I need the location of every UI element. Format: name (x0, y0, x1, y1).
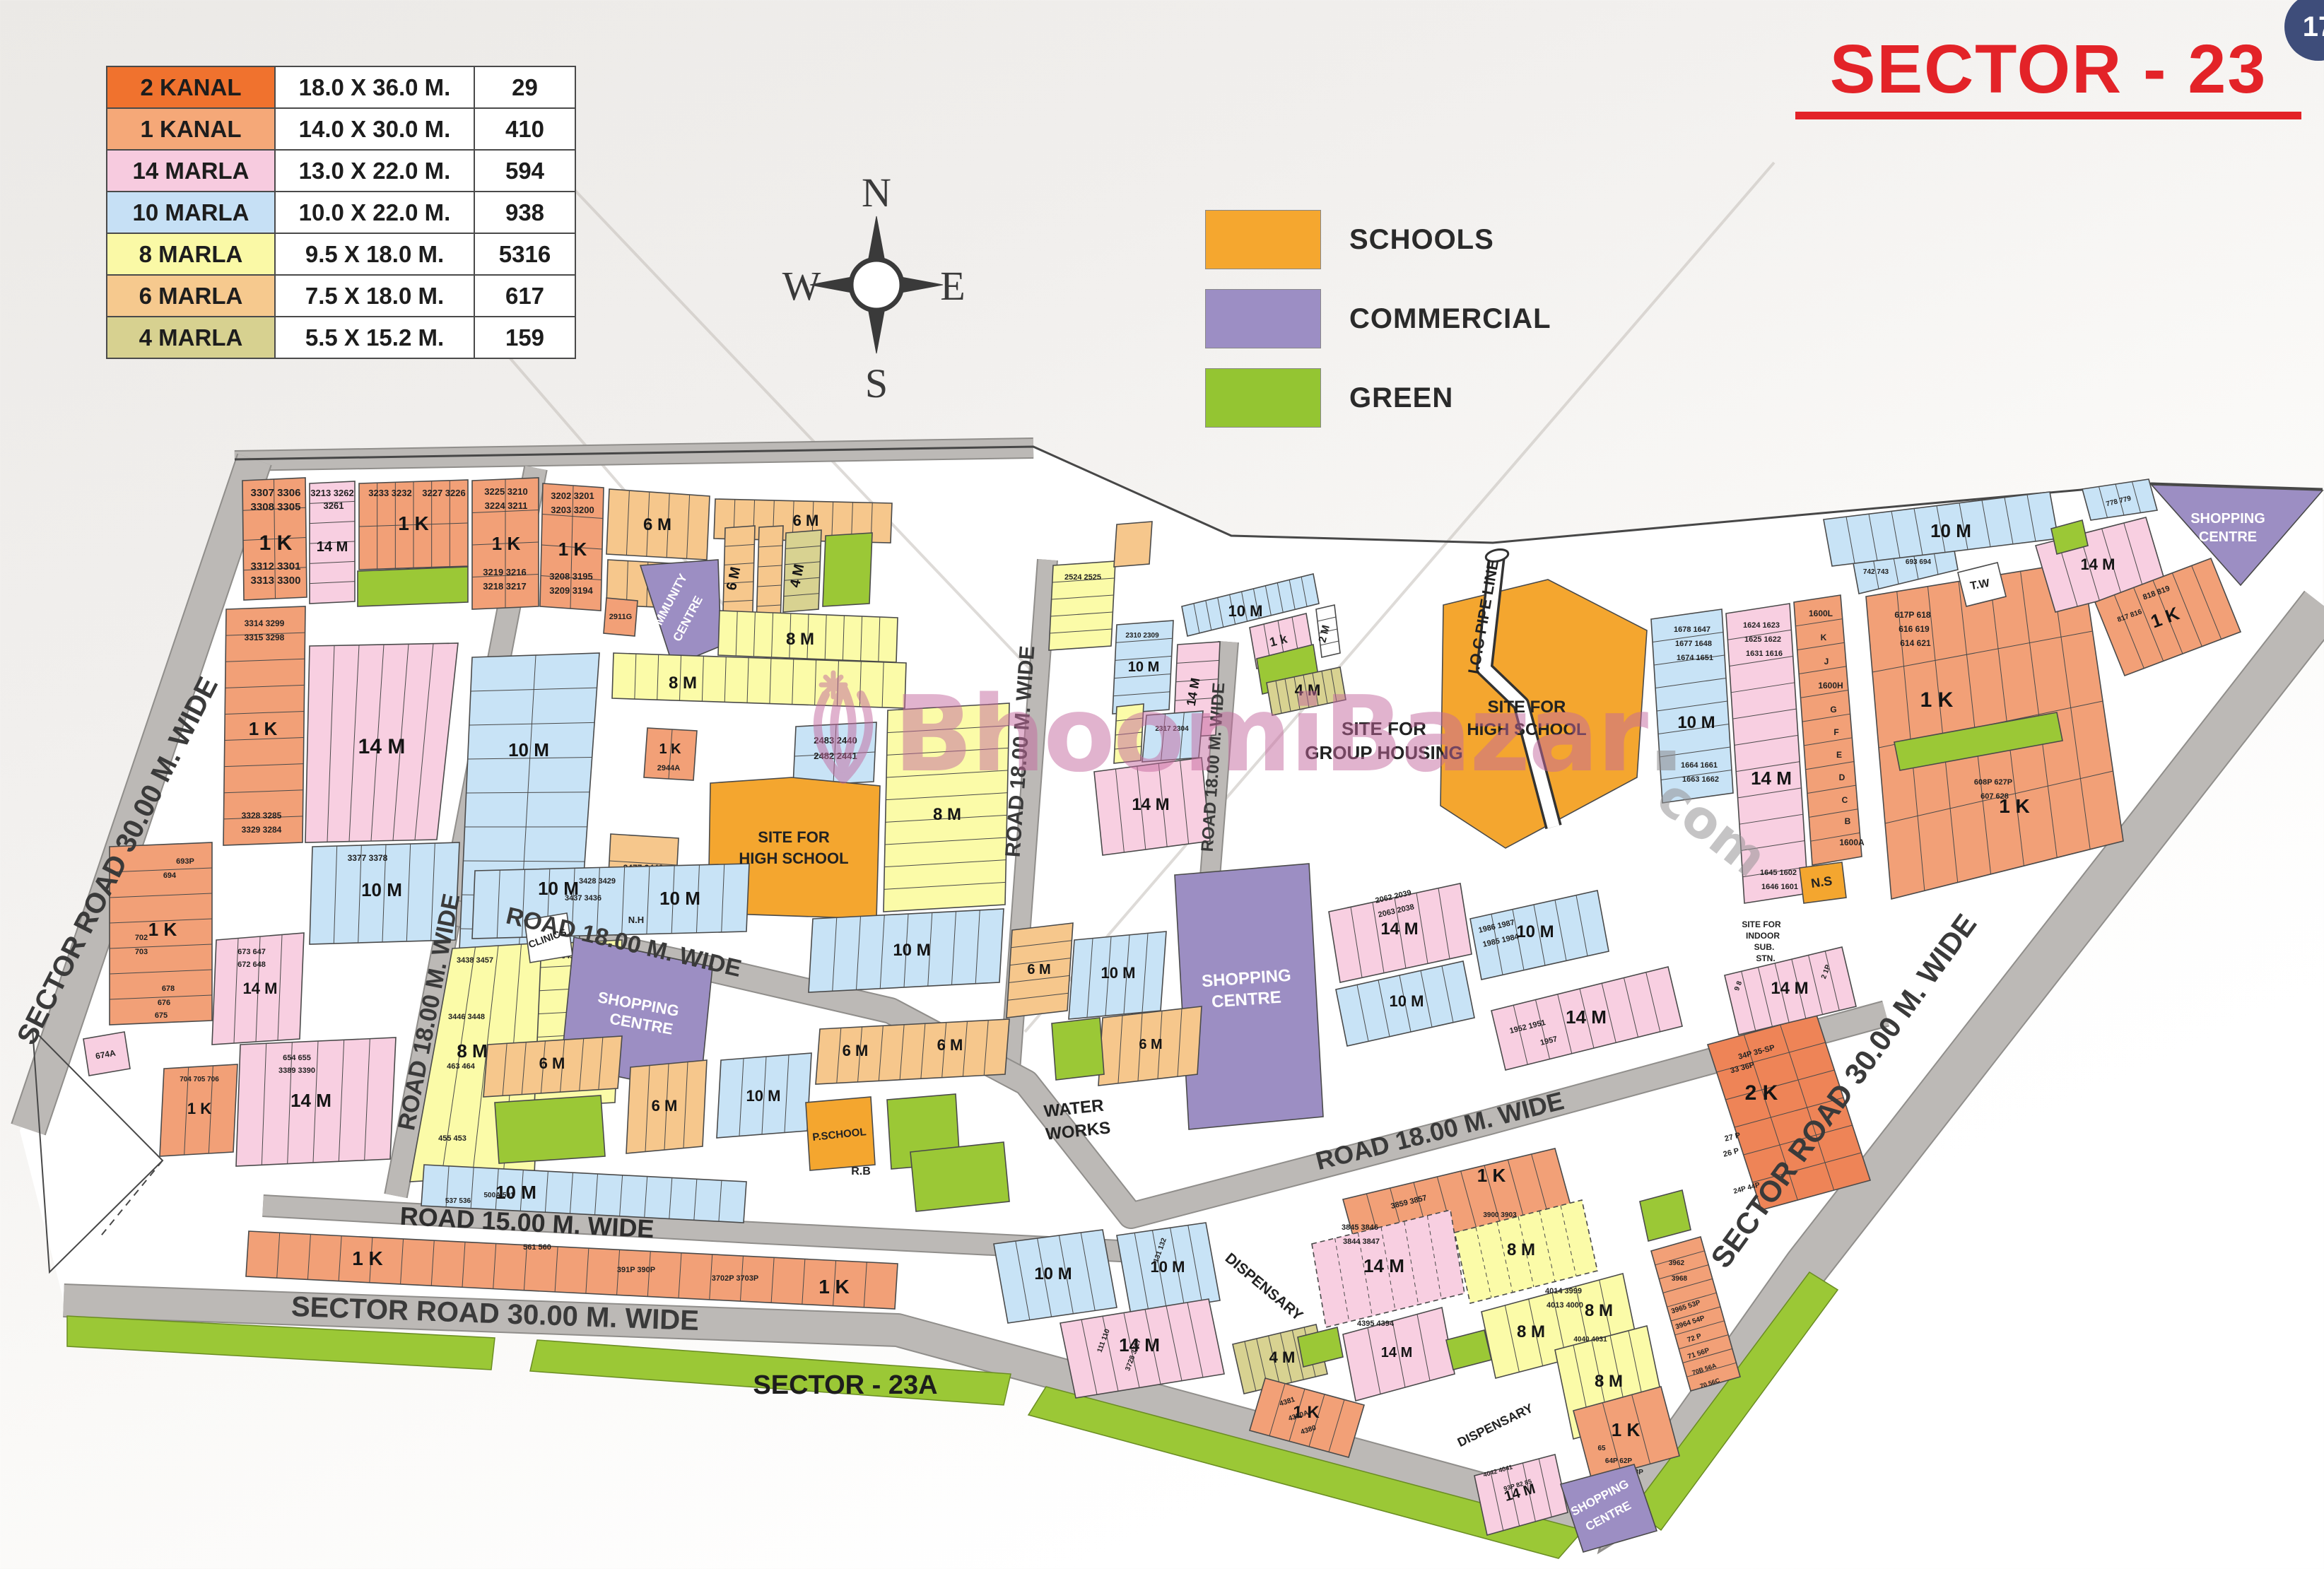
color-swatch (1205, 289, 1321, 348)
plot-size-label: 8 M (1507, 1240, 1535, 1259)
plot-size-label: 1 K (249, 718, 278, 739)
map-text-label: SUB. (1754, 942, 1775, 952)
plot-count: 159 (475, 317, 575, 358)
plot-number: F (1833, 727, 1838, 737)
plot-size-label: 10 M (1128, 659, 1159, 675)
plot-number: 675 (155, 1011, 168, 1020)
color-swatch (1205, 210, 1321, 269)
plot-number: 2310 2309 (1125, 632, 1159, 640)
plot-size-label: 1 K (558, 539, 587, 560)
plot-number: 703 (135, 948, 148, 956)
plot-number: 3219 3216 (483, 567, 526, 577)
plot-size-label: 8 M (1585, 1301, 1613, 1320)
color-swatch (1205, 368, 1321, 428)
plot-size-label: 4 M (1295, 681, 1321, 699)
plot-type-label: 8 MARLA (107, 234, 276, 274)
plot-number: 693P (176, 857, 194, 866)
plot-count: 938 (475, 192, 575, 233)
plot-dimensions: 5.5 X 15.2 M. (276, 317, 475, 358)
color-legend-label: SCHOOLS (1349, 224, 1494, 256)
plot-size-label: 10 M (1516, 922, 1554, 941)
color-legend-item: COMMERCIAL (1205, 290, 1551, 348)
plot-size-label: 1 K (398, 512, 429, 534)
plot-number: C (1842, 795, 1848, 805)
plot-number: D (1839, 772, 1845, 782)
plot-number: 1674 1651 (1677, 654, 1713, 662)
plot-number: 500A 501 (484, 1192, 515, 1199)
plot-size-label: 8 M (786, 630, 814, 649)
plot-size-label: 10 M (1677, 713, 1715, 732)
plot-number: 1645 1602 (1760, 869, 1797, 877)
plot-number: 607 628 (1980, 792, 2009, 801)
plot-size-label: 8 M (669, 674, 697, 693)
plot-type-label: 2 KANAL (107, 67, 276, 107)
plot-size-label: 6 M (539, 1054, 565, 1072)
compass-rose-icon: N S W E (770, 170, 982, 403)
plot-number: 3233 3232 (368, 488, 411, 498)
plot-number: 614 621 (1900, 638, 1931, 648)
plot-size-label: 14 M (317, 539, 348, 555)
plot-number: 3377 3378 (348, 853, 388, 863)
plot-size-label: 1 K (659, 741, 681, 757)
plot-size-label: 14 M (1381, 1345, 1412, 1361)
road (235, 448, 1033, 461)
map-text-label: SHOPPING (2190, 511, 2265, 527)
map-text-label: SITE FOR (758, 828, 830, 846)
plot-size-label: 10 M (893, 941, 930, 960)
plot-number: 64P 62P (1605, 1457, 1633, 1465)
plot-dimensions: 18.0 X 36.0 M. (276, 67, 475, 107)
sector-map-page: { "header": { "title": "SECTOR - 23", "b… (0, 0, 2324, 1569)
plot-size-label: 14 M (358, 735, 406, 758)
plot-size-label: 1 K (1612, 1419, 1641, 1440)
plot-size-label: 1 K (492, 533, 521, 554)
plot-count: 594 (475, 151, 575, 191)
plot-size-label: 6 M (793, 512, 819, 529)
plot-number: 1677 1648 (1675, 640, 1712, 648)
plot-number: 4014 3999 (1545, 1287, 1582, 1295)
compass-east-label: E (940, 263, 965, 309)
plot-size-label: 10 M (1390, 992, 1424, 1010)
plot-number: 3844 3847 (1343, 1238, 1380, 1246)
plot-number: 3446 3448 (448, 1013, 485, 1021)
plot-number: 1663 1662 (1682, 775, 1719, 784)
plot-size-label: 1 K (187, 1100, 211, 1117)
plot-number: 1625 1622 (1744, 635, 1781, 644)
plot-number: 455 453 (438, 1134, 466, 1143)
plot-number: 1624 1623 (1743, 621, 1780, 630)
plot-number: 3208 3195 (549, 571, 592, 582)
plot-block-8m (612, 653, 906, 708)
plot-number: 742 743 (1863, 568, 1889, 576)
plot-number: 1600A (1839, 838, 1865, 847)
plot-block-6m (756, 526, 783, 626)
plot-type-label: 1 KANAL (107, 109, 276, 149)
plot-size-legend-table: 2 KANAL18.0 X 36.0 M.291 KANAL14.0 X 30.… (106, 66, 576, 359)
plot-number: 3227 3226 (422, 488, 465, 498)
plot-count: 410 (475, 109, 575, 149)
plot-number: 1631 1616 (1746, 650, 1783, 658)
legend-table-row: 14 MARLA13.0 X 22.0 M.594 (107, 151, 575, 192)
plot-number: 3968 (1672, 1275, 1688, 1283)
plot-number: 463 464 (447, 1062, 476, 1071)
plot-dimensions: 9.5 X 18.0 M. (276, 234, 475, 274)
plot-type-label: 6 MARLA (107, 276, 276, 316)
plot-dimensions: 7.5 X 18.0 M. (276, 276, 475, 316)
plot-dimensions: 13.0 X 22.0 M. (276, 151, 475, 191)
plot-number: 2944A (657, 764, 680, 772)
plot-dimensions: 10.0 X 22.0 M. (276, 192, 475, 233)
color-legend-label: COMMERCIAL (1349, 303, 1551, 335)
color-legend-item: SCHOOLS (1205, 211, 1551, 269)
plot-number: 3438 3457 (457, 956, 493, 965)
plot-size-label: 10 M (746, 1087, 781, 1105)
plot-number: 1600H (1818, 681, 1843, 691)
plot-count: 5316 (475, 234, 575, 274)
plot-number: 3389 3390 (278, 1066, 315, 1075)
plot-type-label: 14 MARLA (107, 151, 276, 191)
plot-block-green (358, 567, 468, 606)
map-text-label: SITE FOR (1342, 718, 1426, 739)
map-text-label: SITE FOR (1488, 698, 1566, 717)
compass-west-label: W (782, 263, 821, 309)
plot-number: G (1830, 705, 1836, 715)
plot-size-label: 14 M (1132, 795, 1169, 814)
plot-number: E (1836, 750, 1842, 760)
page-title: SECTOR - 23 (1795, 30, 2301, 119)
plot-dimensions: 14.0 X 30.0 M. (276, 109, 475, 149)
plot-size-label: 1 K (818, 1276, 850, 1298)
plot-number: 3428 3429 (579, 877, 616, 886)
compass-north-label: N (862, 170, 891, 216)
plot-size-label: 1 K (1920, 688, 1954, 712)
plot-number: 3962 (1669, 1259, 1685, 1267)
plot-number: 1600L (1809, 609, 1833, 618)
land-use-color-legend: SCHOOLSCOMMERCIALGREEN (1205, 211, 1551, 448)
plot-number: 2482 2441 (814, 751, 857, 761)
plot-size-label: 6 M (843, 1042, 869, 1059)
plot-size-label: 8 M (933, 805, 961, 824)
plot-number: 3312 3301 (251, 560, 301, 572)
plot-number: 654 655 (283, 1054, 311, 1062)
plot-number: 1664 1661 (1681, 761, 1718, 770)
plot-size-label: 1 K (352, 1247, 383, 1269)
plot-number: 2524 2525 (1064, 573, 1101, 582)
legend-table-row: 8 MARLA9.5 X 18.0 M.5316 (107, 234, 575, 276)
plot-block-6m (1114, 522, 1152, 567)
plot-number: 1646 1601 (1761, 883, 1798, 891)
plot-number: 3329 3284 (242, 825, 282, 835)
legend-table-row: 10 MARLA10.0 X 22.0 M.938 (107, 192, 575, 234)
color-legend-label: GREEN (1349, 382, 1453, 414)
map-text-label: N.S (1810, 874, 1833, 891)
plot-size-label: 10 M (361, 879, 402, 900)
plot-size-label: 6 M (1139, 1037, 1162, 1052)
plot-block-green (495, 1095, 605, 1163)
plot-number: J (1824, 657, 1829, 666)
plot-number: 704 705 706 (180, 1076, 219, 1083)
plot-size-label: 10 M (659, 888, 700, 909)
map-text-label: HIGH SCHOOL (739, 850, 848, 867)
plot-size-label: 10 M (1034, 1264, 1072, 1283)
plot-size-label: 10 M (1930, 520, 1971, 541)
plot-number: 3308 3305 (251, 501, 301, 513)
color-legend-item: GREEN (1205, 369, 1551, 427)
legend-table-row: 2 KANAL18.0 X 36.0 M.29 (107, 67, 575, 109)
plot-number: 616 619 (1898, 624, 1930, 634)
legend-table-row: 6 MARLA7.5 X 18.0 M.617 (107, 276, 575, 317)
plot-number: 4040 4031 (1573, 1336, 1607, 1344)
plot-size-label: 6 M (937, 1036, 963, 1054)
plot-number: 702 (135, 934, 148, 942)
map-text-label: STN. (1756, 953, 1775, 963)
plot-number: 4395 4394 (1357, 1320, 1395, 1328)
plot-size-label: 10 M (1101, 964, 1136, 982)
plot-block-green (823, 533, 872, 606)
plot-number: K (1821, 633, 1827, 642)
legend-table-row: 4 MARLA5.5 X 15.2 M.159 (107, 317, 575, 358)
map-text-label: R.B (851, 1165, 871, 1177)
plot-number: 3313 3300 (251, 575, 301, 587)
plot-number: 2911G (609, 613, 632, 621)
plot-size-label: 4 M (1269, 1348, 1296, 1366)
plot-count: 29 (475, 67, 575, 107)
plot-size-label: 8 M (457, 1040, 487, 1062)
map-text-label: INDOOR (1746, 931, 1780, 941)
map-text-label: HIGH SCHOOL (1467, 720, 1586, 739)
plot-number: 391P 390P (617, 1266, 655, 1274)
plot-number: 3702P 3703P (712, 1274, 758, 1283)
plot-count: 617 (475, 276, 575, 316)
plot-number: 3437 3436 (565, 894, 601, 903)
plot-number: 3328 3285 (242, 811, 282, 821)
plot-number: 678 (162, 985, 175, 993)
plot-size-label: 6 M (643, 515, 671, 534)
plot-number: 3209 3194 (549, 585, 593, 596)
plot-number: 3218 3217 (483, 581, 526, 592)
plot-number: 3314 3299 (245, 618, 285, 628)
map-text-label: GROUP HOUSING (1305, 742, 1462, 763)
plot-number: 3224 3211 (485, 500, 528, 511)
plot-number: 676 (158, 999, 170, 1007)
plot-number: 3900 3903 (1483, 1211, 1517, 1219)
plot-number: 3845 3846 (1342, 1223, 1378, 1232)
plot-size-label: 8 M (1517, 1322, 1545, 1341)
plot-size-label: 10 M (508, 739, 549, 760)
plot-size-label: 14 M (2081, 556, 2115, 573)
plot-size-label: 8 M (1595, 1372, 1623, 1391)
plot-number: 3213 3262 (310, 488, 353, 498)
plot-number: B (1845, 816, 1851, 826)
plot-number: 4013 4000 (1547, 1301, 1583, 1310)
plot-size-label: 2 K (1745, 1081, 1778, 1105)
plot-size-label: 1 K (259, 531, 293, 555)
map-text-label: SECTOR - 23A (753, 1370, 937, 1400)
plot-number: 693 694 (1906, 558, 1932, 566)
plot-block-green (1052, 1018, 1104, 1080)
plot-size-label: 14 M (1380, 919, 1418, 939)
map-text-label: SITE FOR (1742, 919, 1781, 929)
plot-number: 3202 3201 (551, 490, 594, 501)
plot-size-label: 14 M (290, 1090, 331, 1111)
plot-number: 694 (163, 871, 177, 880)
compass-south-label: S (865, 360, 888, 403)
plot-block-10m (1142, 711, 1203, 762)
map-text-label: N.H (628, 915, 644, 925)
plot-number: 2483 2440 (814, 735, 857, 746)
plot-size-label: 1 K (1477, 1165, 1506, 1186)
plot-size-label: 1 K (148, 919, 177, 940)
plot-number: 673 647 (237, 948, 266, 956)
plot-size-label: 14 M (1771, 979, 1808, 998)
plot-number: 561 560 (523, 1243, 551, 1252)
plot-type-label: 4 MARLA (107, 317, 276, 358)
legend-table-row: 1 KANAL14.0 X 30.0 M.410 (107, 109, 575, 151)
map-text-label: CENTRE (2199, 529, 2257, 545)
plot-type-label: 10 MARLA (107, 192, 276, 233)
plot-number: 1678 1647 (1674, 625, 1710, 634)
plot-number: 2317 2304 (1155, 725, 1189, 733)
plot-number: 3261 (324, 500, 344, 511)
plot-size-label: 14 M (243, 980, 278, 997)
plot-number: 3225 3210 (484, 486, 527, 497)
plot-number: 608P 627P (1974, 778, 2012, 787)
plot-number: 3307 3306 (251, 487, 301, 499)
plot-size-label: 10 M (1228, 602, 1263, 620)
plot-size-label: 14 M (1566, 1006, 1607, 1028)
plot-number: 3315 3298 (245, 633, 285, 642)
plot-number: 65 (1597, 1445, 1606, 1452)
plot-number: 672 648 (237, 960, 266, 969)
plot-size-label: 6 M (1027, 962, 1050, 977)
plot-size-label: 14 M (1751, 768, 1792, 789)
plot-size-label: 6 M (652, 1097, 678, 1115)
plot-number: 3203 3200 (551, 505, 594, 515)
plot-number: 617P 618 (1894, 610, 1930, 620)
plot-size-label: 14 M (1363, 1255, 1404, 1276)
plot-block-green (910, 1142, 1009, 1211)
